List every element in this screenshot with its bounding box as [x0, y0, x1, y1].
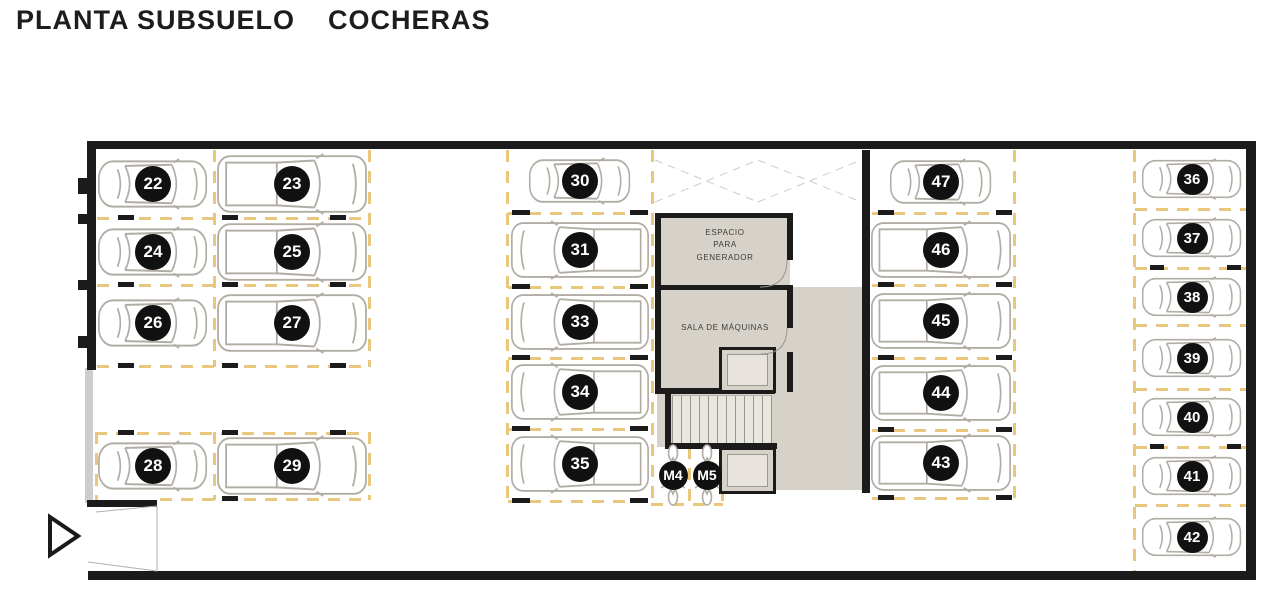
- machine-room-label: SALA DE MÁQUINAS: [662, 322, 788, 334]
- wall-segment: [655, 213, 661, 394]
- parking-spot-M5: M5: [692, 444, 722, 506]
- wall-segment: [655, 285, 793, 290]
- parking-spot-29: 29: [216, 435, 368, 497]
- wall-tick: [878, 355, 894, 360]
- generator-room-label: ESPACIO PARA GENERADOR: [662, 227, 788, 264]
- parking-spot-24: 24: [97, 226, 209, 278]
- spot-number-badge: 45: [923, 303, 959, 339]
- spot-number-badge: 29: [274, 448, 310, 484]
- parking-spot-44: 44: [870, 363, 1012, 423]
- spot-number-badge: 34: [562, 374, 598, 410]
- wall-tick: [630, 284, 648, 289]
- wall-tick: [878, 210, 894, 215]
- parking-spot-34: 34: [510, 362, 650, 422]
- parking-spot-26: 26: [97, 297, 209, 349]
- spot-number-badge: 43: [923, 445, 959, 481]
- wall-tick: [996, 427, 1012, 432]
- elevator-shaft: [719, 347, 776, 393]
- spot-number-badge: 30: [562, 163, 598, 199]
- parking-spot-23: 23: [216, 153, 368, 215]
- ramp-cross-lines: [655, 160, 861, 202]
- wall-segment: [88, 571, 1256, 580]
- spot-number-badge: 28: [135, 448, 171, 484]
- floor-plan: PLANTA SUBSUELO COCHERAS ESPACIO PARA GE…: [0, 0, 1280, 596]
- parking-spot-39: 39: [1141, 337, 1243, 379]
- spot-number-badge: 46: [923, 232, 959, 268]
- wall-segment: [787, 352, 793, 392]
- elevator-car: [727, 354, 768, 386]
- wall-tick: [878, 427, 894, 432]
- parking-line: [1135, 388, 1246, 391]
- parking-spot-41: 41: [1141, 455, 1243, 497]
- entrance-arrow-icon: [50, 517, 78, 555]
- spot-number-badge: 39: [1177, 343, 1208, 374]
- wall-tick: [222, 363, 238, 368]
- wall-segment: [88, 141, 1256, 149]
- wall-segment: [1246, 141, 1256, 571]
- wall-tick: [878, 495, 894, 500]
- wall-tick: [996, 282, 1012, 287]
- wall-tick: [878, 282, 894, 287]
- plan-subtitle: COCHERAS: [328, 5, 491, 36]
- parking-spot-27: 27: [216, 292, 368, 354]
- parking-line: [651, 150, 654, 505]
- wall-tick: [1150, 444, 1164, 449]
- parking-line: [368, 150, 371, 367]
- spot-number-badge: 23: [274, 166, 310, 202]
- plan-title: PLANTA SUBSUELO: [16, 5, 295, 36]
- parking-spot-36: 36: [1141, 158, 1243, 200]
- spot-number-badge: 25: [274, 234, 310, 270]
- elevator-car: [727, 454, 768, 487]
- wall-segment: [665, 394, 671, 449]
- parking-spot-22: 22: [97, 158, 209, 210]
- parking-spot-31: 31: [510, 220, 650, 280]
- spot-number-badge: 26: [135, 305, 171, 341]
- parking-line: [368, 432, 371, 500]
- wall-tick: [330, 363, 346, 368]
- parking-spot-25: 25: [216, 221, 368, 283]
- parking-line: [1135, 208, 1246, 211]
- wall-tick: [118, 215, 134, 220]
- spot-number-badge: M5: [693, 461, 722, 490]
- parking-line: [1013, 150, 1016, 498]
- spot-number-badge: 35: [562, 446, 598, 482]
- wall-tick: [1150, 265, 1164, 270]
- spot-number-badge: 33: [562, 304, 598, 340]
- spot-number-badge: 40: [1177, 402, 1208, 433]
- wall-tick: [118, 430, 134, 435]
- parking-line: [160, 498, 370, 501]
- staircase: [672, 395, 772, 444]
- spot-number-badge: 36: [1177, 164, 1208, 195]
- wall-tick: [512, 355, 530, 360]
- wall-tick: [630, 210, 648, 215]
- parking-spot-33: 33: [510, 292, 650, 352]
- wall-tick: [630, 355, 648, 360]
- parking-spot-47: 47: [889, 158, 993, 206]
- wall-tick: [996, 355, 1012, 360]
- parking-line: [1135, 324, 1246, 327]
- wall-tick: [512, 426, 530, 431]
- wall-tick: [512, 210, 530, 215]
- parking-line: [506, 150, 509, 505]
- spot-number-badge: 27: [274, 305, 310, 341]
- parking-spot-37: 37: [1141, 217, 1243, 259]
- parking-line: [1135, 504, 1246, 507]
- floor-area-open: [790, 215, 862, 287]
- wall-tick: [630, 426, 648, 431]
- ramp-wall-segment: [85, 368, 93, 503]
- wall-tick: [996, 210, 1012, 215]
- wall-segment: [87, 141, 96, 370]
- parking-spot-35: 35: [510, 434, 650, 494]
- elevator-shaft: [719, 447, 776, 494]
- wall-tick: [630, 498, 648, 503]
- wall-tick: [1227, 444, 1241, 449]
- wall-segment: [862, 150, 870, 493]
- spot-number-badge: 38: [1177, 282, 1208, 313]
- spot-number-badge: 47: [923, 164, 959, 200]
- wall-tick: [118, 282, 134, 287]
- spot-number-badge: M4: [659, 461, 688, 490]
- spot-number-badge: 31: [562, 232, 598, 268]
- entrance-ramp-lines: [88, 506, 157, 571]
- wall-tick: [996, 495, 1012, 500]
- wall-tick: [512, 284, 530, 289]
- wall-segment: [655, 213, 793, 218]
- parking-spot-46: 46: [870, 220, 1012, 280]
- wall-tick: [222, 215, 238, 220]
- parking-spot-40: 40: [1141, 396, 1243, 438]
- parking-spot-43: 43: [870, 433, 1012, 493]
- parking-line: [1133, 150, 1136, 571]
- wall-tick: [118, 363, 134, 368]
- spot-number-badge: 42: [1177, 522, 1208, 553]
- parking-spot-28: 28: [97, 440, 209, 492]
- wall-tick: [1227, 265, 1241, 270]
- wall-segment: [87, 500, 157, 507]
- parking-spot-38: 38: [1141, 276, 1243, 318]
- wall-tick: [330, 215, 346, 220]
- parking-spot-42: 42: [1141, 516, 1243, 558]
- wall-tick: [512, 498, 530, 503]
- spot-number-badge: 41: [1177, 461, 1208, 492]
- parking-spot-30: 30: [528, 157, 632, 205]
- spot-number-badge: 37: [1177, 223, 1208, 254]
- parking-line: [688, 447, 691, 505]
- spot-number-badge: 44: [923, 375, 959, 411]
- parking-spot-45: 45: [870, 291, 1012, 351]
- parking-spot-M4: M4: [658, 444, 688, 506]
- spot-number-badge: 24: [135, 234, 171, 270]
- spot-number-badge: 22: [135, 166, 171, 202]
